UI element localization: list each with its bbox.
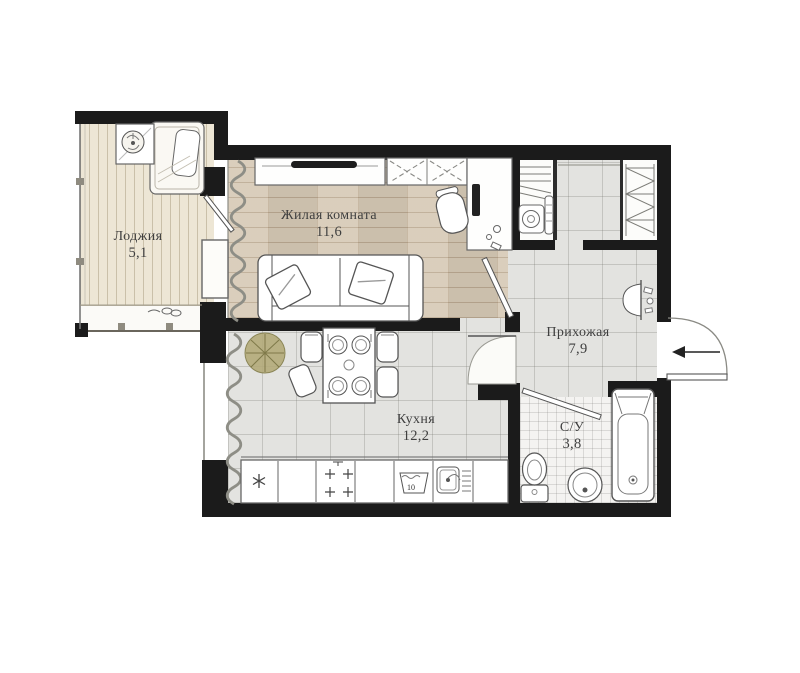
daybed (150, 122, 204, 194)
desk (467, 158, 512, 250)
plant-sketch-icon (122, 131, 144, 153)
curtain-living-icon (231, 161, 245, 321)
washer-symbol-text: 10 (407, 483, 415, 492)
tv-cabinet (255, 158, 385, 185)
closet-heater-icon (545, 196, 553, 234)
desk-chair (433, 185, 471, 235)
dining-table (323, 328, 375, 403)
entrance-arrow-icon (672, 346, 720, 358)
room-label-loggia: Лоджия 5,1 (114, 229, 163, 261)
plant-table (116, 124, 154, 164)
room-name: С/У (560, 420, 584, 436)
balcony-door-leaf (204, 195, 234, 232)
slippers-icon (148, 308, 181, 316)
closet-washer-icon (519, 205, 544, 233)
bathtub-icon (612, 389, 654, 501)
room-label-kitchen: Кухня 12,2 (397, 412, 435, 444)
room-label-hallway: Прихожая 7,9 (546, 325, 609, 357)
room-name: Лоджия (114, 229, 163, 245)
kitchen-plant-icon (245, 333, 285, 373)
room-area: 5,1 (114, 245, 163, 261)
wardrobe-mirror (387, 158, 467, 185)
hallway-basin-icon (623, 280, 653, 320)
room-name: Жилая комната (281, 208, 377, 224)
room-area: 7,9 (546, 341, 609, 357)
room-name: Прихожая (546, 325, 609, 341)
living-room-door-leaf (482, 258, 514, 318)
room-label-bathroom: С/У 3,8 (560, 420, 584, 452)
curtain-kitchen-icon (227, 334, 241, 504)
sofa (258, 255, 423, 321)
entrance-door (667, 318, 727, 380)
room-name: Кухня (397, 412, 435, 428)
tv-icon (291, 161, 357, 168)
room-label-living: Жилая комната 11,6 (281, 208, 377, 240)
kitchen-door-swing (468, 336, 516, 384)
balcony-window (202, 240, 228, 298)
kitchen-counter: 10 (241, 457, 508, 503)
floor-plan: 10 (0, 0, 800, 673)
monitor-icon (472, 184, 480, 216)
bathroom-door-leaf (522, 388, 601, 419)
room-area: 12,2 (397, 428, 435, 444)
room-area: 3,8 (560, 436, 584, 452)
room-area: 11,6 (281, 224, 377, 240)
toilet-icon (521, 453, 548, 502)
bathroom-sink-icon (568, 468, 602, 502)
plan-ink-layer: 10 (0, 0, 800, 673)
